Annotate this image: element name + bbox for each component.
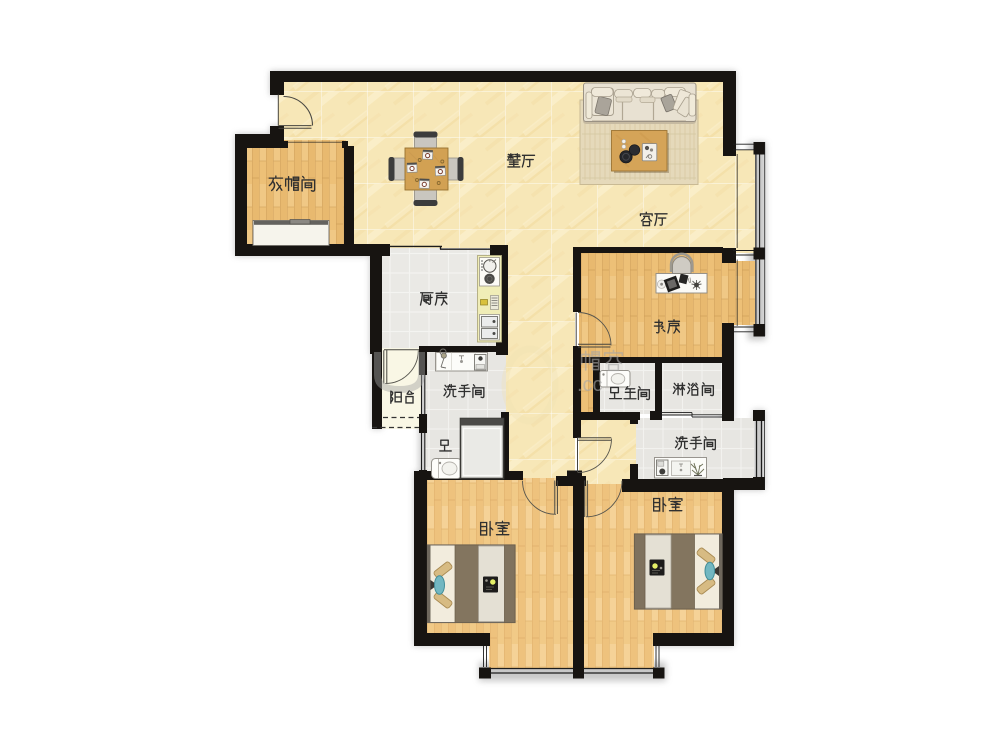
svg-text:.cc: .cc [577, 374, 603, 396]
